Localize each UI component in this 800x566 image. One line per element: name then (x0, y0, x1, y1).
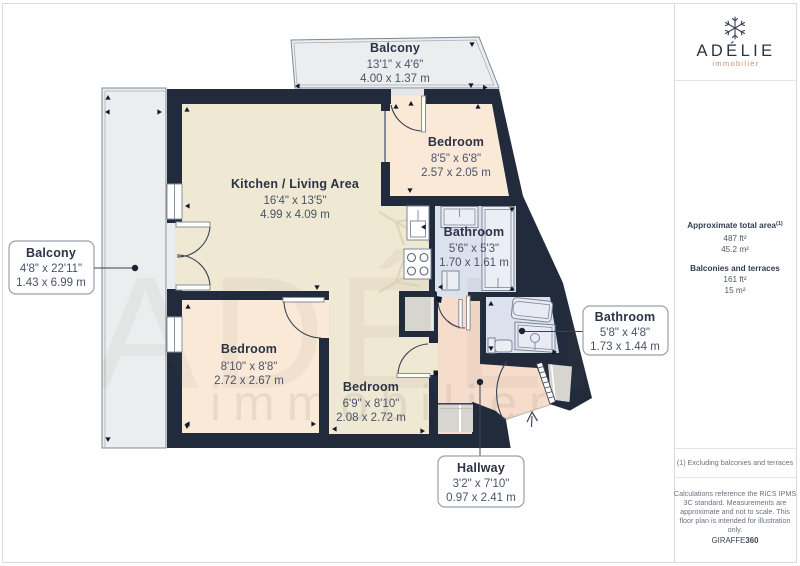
svg-text:Balconies and terraces: Balconies and terraces (690, 264, 780, 273)
svg-text:5'6" x 5'3": 5'6" x 5'3" (449, 243, 499, 255)
svg-text:8'5" x 6'8": 8'5" x 6'8" (431, 153, 481, 165)
svg-text:Bedroom: Bedroom (428, 135, 484, 149)
svg-text:2.57 x 2.05 m: 2.57 x 2.05 m (421, 167, 491, 179)
svg-text:approximate and not to scale.: approximate and not to scale. This (680, 507, 790, 516)
svg-text:2.08 x 2.72 m: 2.08 x 2.72 m (336, 412, 406, 424)
svg-text:Approximate total area(1): Approximate total area(1) (687, 221, 783, 230)
svg-text:45.2 m²: 45.2 m² (721, 245, 749, 254)
svg-text:Bedroom: Bedroom (343, 380, 399, 394)
svg-text:Bathroom: Bathroom (444, 225, 505, 239)
svg-text:1.73 x 1.44 m: 1.73 x 1.44 m (590, 341, 660, 353)
svg-text:1.43 x 6.99 m: 1.43 x 6.99 m (16, 277, 86, 289)
svg-text:Balcony: Balcony (370, 41, 420, 55)
svg-text:3C standard. Measurements are: 3C standard. Measurements are (683, 498, 786, 507)
svg-text:ADÉLIE: ADÉLIE (696, 41, 775, 60)
svg-text:15 m²: 15 m² (725, 286, 746, 295)
svg-text:6'9" x 8'10": 6'9" x 8'10" (343, 398, 400, 410)
svg-text:2.72 x 2.67 m: 2.72 x 2.67 m (214, 375, 284, 387)
svg-text:5'8" x 4'8": 5'8" x 4'8" (600, 327, 650, 339)
svg-text:4.99 x 4.09 m: 4.99 x 4.09 m (260, 209, 330, 221)
svg-text:487 ft²: 487 ft² (723, 234, 746, 243)
svg-text:Balcony: Balcony (26, 246, 76, 260)
svg-text:Hallway: Hallway (457, 461, 505, 475)
svg-text:(1) Excluding balconies and te: (1) Excluding balconies and terraces (677, 458, 794, 467)
svg-text:only.: only. (728, 525, 743, 534)
svg-text:16'4" x 13'5": 16'4" x 13'5" (263, 195, 326, 207)
svg-text:4.00 x 1.37 m: 4.00 x 1.37 m (360, 73, 430, 85)
svg-text:8'10" x 8'8": 8'10" x 8'8" (221, 361, 278, 373)
svg-text:immobilier: immobilier (712, 59, 759, 68)
svg-text:GIRAFFE360: GIRAFFE360 (712, 536, 759, 545)
svg-text:Kitchen / Living Area: Kitchen / Living Area (231, 177, 360, 191)
svg-text:Bedroom: Bedroom (221, 342, 277, 356)
svg-text:Bathroom: Bathroom (595, 310, 656, 324)
svg-text:0.97 x 2.41 m: 0.97 x 2.41 m (446, 492, 516, 504)
svg-text:1.70 x 1.61 m: 1.70 x 1.61 m (439, 257, 509, 269)
svg-text:floor plan is intended for ill: floor plan is intended for illustration (679, 516, 790, 525)
svg-text:4'8" x 22'11": 4'8" x 22'11" (20, 263, 82, 275)
svg-text:161 ft²: 161 ft² (723, 275, 746, 284)
svg-text:3'2" x 7'10": 3'2" x 7'10" (453, 478, 510, 490)
svg-text:Calculations reference the RIC: Calculations reference the RICS IPMS (674, 489, 796, 498)
svg-text:13'1" x 4'6": 13'1" x 4'6" (367, 59, 424, 71)
